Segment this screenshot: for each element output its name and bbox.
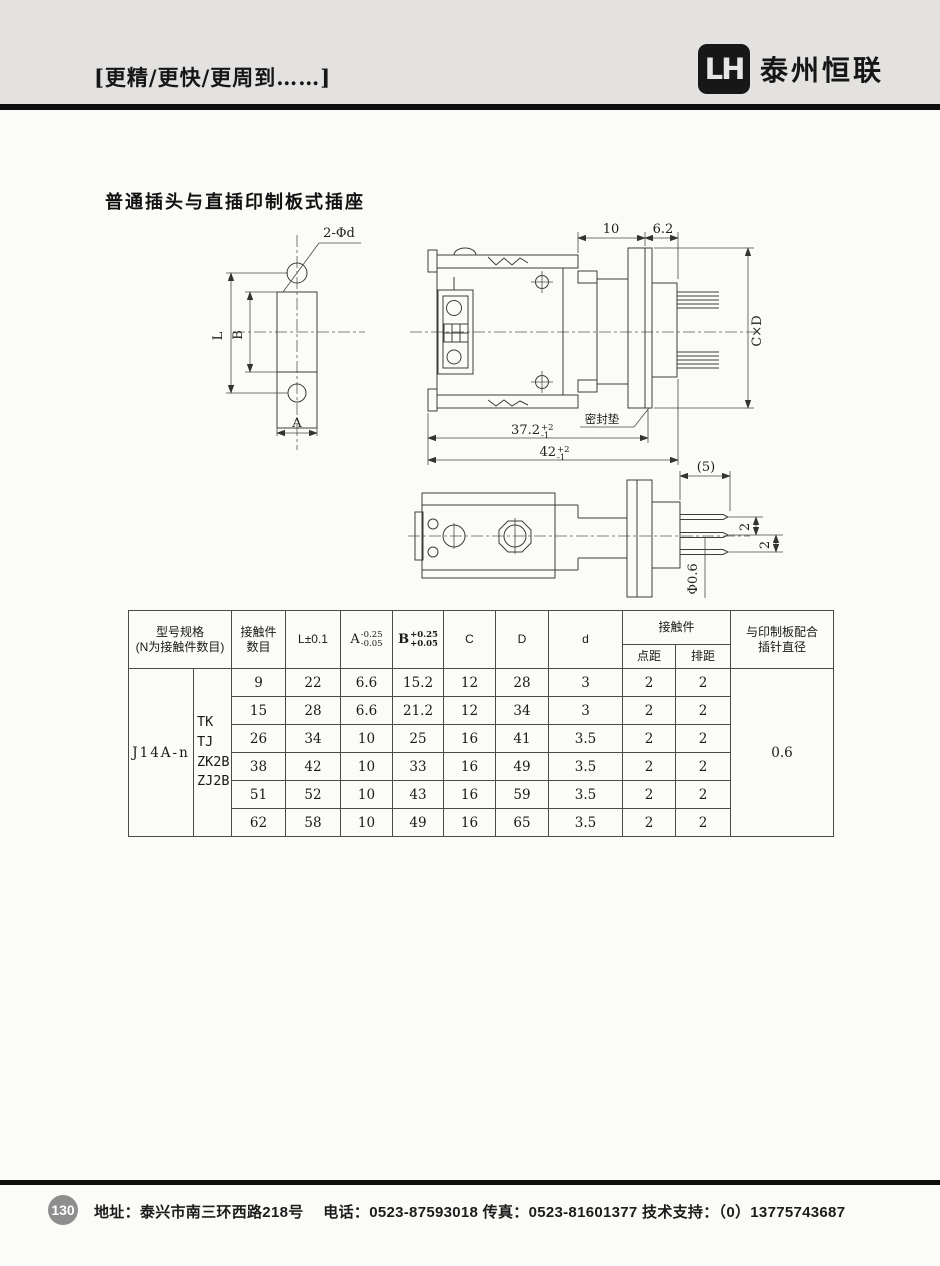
cell-C: 16: [444, 809, 496, 837]
cell-D: 49: [496, 753, 549, 781]
cell-D: 41: [496, 725, 549, 753]
footer-rule: [0, 1180, 940, 1185]
cell-C: 16: [444, 781, 496, 809]
top-view: (5) 2 2 Φ0.6: [408, 460, 783, 598]
logo-mark-icon: LH: [698, 44, 750, 94]
cell-C: 12: [444, 697, 496, 725]
col-header-B-letter: B: [398, 632, 409, 647]
cell-pitch: 2: [623, 669, 676, 697]
cell-B: 15.2: [393, 669, 444, 697]
table-row: 26 34 10 25 16 41 3.5 2 2: [129, 725, 834, 753]
cell-pitch: 2: [623, 809, 676, 837]
table-row: 38 42 10 33 16 49 3.5 2 2: [129, 753, 834, 781]
technical-drawing: L B A 2-Φd: [0, 205, 940, 605]
cell-row-pitch: 2: [676, 725, 731, 753]
spec-table: 型号规格 (N为接触件数目) 接触件 数目 L±0.1 A-0.25-0.05 …: [128, 610, 834, 837]
type-item: ZK2B: [197, 753, 231, 773]
type-item: ZJ2B: [197, 772, 231, 792]
cell-A: 10: [341, 725, 393, 753]
type-item: TJ: [197, 733, 231, 753]
cell-B: 21.2: [393, 697, 444, 725]
cell-C: 12: [444, 669, 496, 697]
cell-d: 3.5: [549, 781, 623, 809]
dim-label-37-2-sub: -1: [541, 431, 549, 441]
cell-row-pitch: 2: [676, 809, 731, 837]
col-header-board-fit: 与印制板配合 插针直径: [731, 611, 834, 669]
cell-C: 16: [444, 753, 496, 781]
cell-row-pitch: 2: [676, 781, 731, 809]
dim-label-CxD: C×D: [750, 315, 765, 346]
cell-d: 3.5: [549, 809, 623, 837]
col-header-d: d: [549, 611, 623, 669]
dim-label-pin-dia: Φ0.6: [686, 563, 701, 594]
cell-L: 34: [286, 725, 341, 753]
table-row: 62 58 10 49 16 65 3.5 2 2: [129, 809, 834, 837]
cell-L: 52: [286, 781, 341, 809]
dim-label-42-sub: -1: [557, 453, 565, 463]
cell-contacts: 38: [232, 753, 286, 781]
cell-row-pitch: 2: [676, 753, 731, 781]
col-header-model-line2: (N为接触件数目): [129, 640, 231, 655]
col-header-B: B+0.25+0.05: [393, 611, 444, 669]
cell-pitch: 2: [623, 781, 676, 809]
hole-callout-label: 2-Φd: [323, 226, 355, 241]
col-header-A-sub: -0.05: [361, 640, 383, 649]
col-header-pitch: 点距: [623, 645, 676, 669]
cell-L: 58: [286, 809, 341, 837]
cell-L: 42: [286, 753, 341, 781]
table-row: 51 52 10 43 16 59 3.5 2 2: [129, 781, 834, 809]
dim-label-2a: 2: [738, 523, 753, 531]
company-logo: LH 泰州恒联: [698, 44, 884, 94]
cell-A: 10: [341, 753, 393, 781]
dim-label-10: 10: [603, 222, 620, 237]
dim-label-2b: 2: [758, 541, 773, 549]
cell-d: 3: [549, 669, 623, 697]
cell-d: 3: [549, 697, 623, 725]
cell-A: 6.6: [341, 697, 393, 725]
header-rule: [0, 104, 940, 110]
cell-contacts: 9: [232, 669, 286, 697]
header-band: [更精/更快/更周到……] LH 泰州恒联: [0, 0, 940, 104]
cell-row-pitch: 2: [676, 697, 731, 725]
col-header-B-sub: +0.05: [410, 640, 438, 649]
catalog-page: [更精/更快/更周到……] LH 泰州恒联 普通插头与直插印制板式插座 L: [0, 0, 940, 1266]
dim-label-42: 42: [539, 445, 556, 460]
cell-B: 33: [393, 753, 444, 781]
cell-pitch: 2: [623, 697, 676, 725]
cell-B: 25: [393, 725, 444, 753]
type-item: TK: [197, 713, 231, 733]
cell-A: 10: [341, 809, 393, 837]
col-header-model-line1: 型号规格: [129, 625, 231, 640]
cell-B: 49: [393, 809, 444, 837]
cell-A: 6.6: [341, 669, 393, 697]
dim-label-L: L: [211, 331, 226, 340]
side-view: 10 6.2 C×D 37.2 +2 -1 42 +2 -1 密封垫: [410, 222, 765, 465]
contact-pins-top: [680, 515, 728, 555]
table-row: J14A-n TK TJ ZK2B ZJ2B 9 22 6.6 15.2 12 …: [129, 669, 834, 697]
pin-diameter-cell: 0.6: [731, 669, 834, 837]
cell-D: 28: [496, 669, 549, 697]
cell-B: 43: [393, 781, 444, 809]
cell-d: 3.5: [549, 725, 623, 753]
cell-D: 34: [496, 697, 549, 725]
cell-D: 65: [496, 809, 549, 837]
flange-front-view: L B A 2-Φd: [211, 226, 365, 450]
col-header-board-line2: 插针直径: [731, 640, 833, 655]
col-header-D: D: [496, 611, 549, 669]
cell-contacts: 51: [232, 781, 286, 809]
flange-plate: [628, 248, 645, 408]
cell-A: 10: [341, 781, 393, 809]
model-cell: J14A-n: [129, 669, 194, 837]
cell-L: 22: [286, 669, 341, 697]
cell-contacts: 15: [232, 697, 286, 725]
cell-L: 28: [286, 697, 341, 725]
contact-pins-side: [677, 292, 719, 368]
col-header-A-letter: A: [350, 632, 359, 647]
company-slogan: [更精/更快/更周到……]: [94, 62, 331, 92]
table-row: 15 28 6.6 21.2 12 34 3 2 2: [129, 697, 834, 725]
cell-C: 16: [444, 725, 496, 753]
cell-pitch: 2: [623, 725, 676, 753]
col-header-contact-count: 接触件 数目: [232, 611, 286, 669]
footer: 130 地址：泰兴市南三环西路218号 电话：0523-87593018 传真：…: [0, 1193, 940, 1227]
page-number-badge: 130: [48, 1195, 78, 1225]
cell-row-pitch: 2: [676, 669, 731, 697]
cell-contacts: 62: [232, 809, 286, 837]
types-cell: TK TJ ZK2B ZJ2B: [194, 669, 232, 837]
col-header-contact-group: 接触件: [623, 611, 731, 645]
col-header-contacts-line2: 数目: [232, 640, 285, 655]
dim-label-B: B: [231, 330, 246, 340]
gasket-label: 密封垫: [585, 412, 620, 426]
dim-label-A: A: [291, 416, 302, 431]
col-header-C: C: [444, 611, 496, 669]
col-header-A: A-0.25-0.05: [341, 611, 393, 669]
col-header-model: 型号规格 (N为接触件数目): [129, 611, 232, 669]
dim-label-6-2: 6.2: [653, 222, 674, 237]
col-header-row-pitch: 排距: [676, 645, 731, 669]
cell-d: 3.5: [549, 753, 623, 781]
sealing-gasket: [645, 248, 652, 408]
cell-pitch: 2: [623, 753, 676, 781]
cell-contacts: 26: [232, 725, 286, 753]
col-header-contacts-line1: 接触件: [232, 625, 285, 640]
footer-contact-info: 地址：泰兴市南三环西路218号 电话：0523-87593018 传真：0523…: [94, 1201, 845, 1222]
col-header-L: L±0.1: [286, 611, 341, 669]
cell-D: 59: [496, 781, 549, 809]
dim-label-37-2: 37.2: [511, 423, 540, 438]
col-header-board-line1: 与印制板配合: [731, 625, 833, 640]
company-name: 泰州恒联: [760, 49, 884, 89]
dim-label-5: (5): [697, 460, 715, 475]
